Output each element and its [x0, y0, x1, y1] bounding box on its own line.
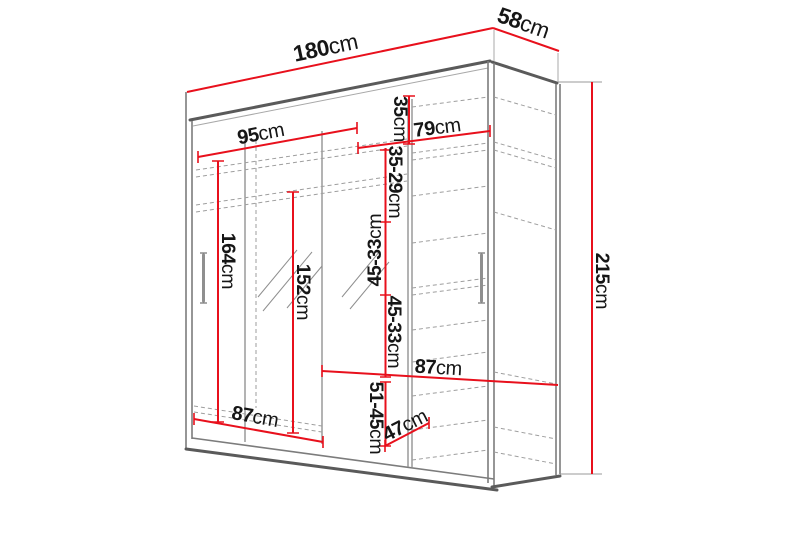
dim-total-height-unit: cm	[591, 284, 613, 309]
dim-total-height-value: 215	[591, 253, 613, 285]
dim-shelf-upper-unit: cm	[384, 193, 406, 218]
dim-left-door-height-unit: cm	[217, 264, 239, 289]
dim-left-door-height-label: 164cm	[217, 233, 239, 289]
dim-left-bottom-width-unit: cm	[251, 406, 280, 432]
dim-shelf-mid-a-label: 45-33cm	[364, 214, 386, 287]
front-top-edge	[190, 61, 490, 120]
dim-shelf-upper-value: 35-29	[384, 146, 406, 194]
shelf-line-right	[412, 97, 488, 460]
dim-mirror-height-unit: cm	[292, 295, 314, 320]
dim-mirror-height-value: 152	[292, 264, 314, 296]
dim-left-top-width-label: 95cm	[236, 119, 287, 149]
dim-right-top-width-unit: cm	[433, 114, 462, 139]
dim-bottom-shelf-value: 51-45	[365, 382, 387, 430]
dim-right-shelf-width-label: 87cm	[414, 356, 463, 381]
dim-shelf-mid-b-label: 45-33cm	[383, 296, 405, 369]
dim-shelf-mid-b-unit: cm	[383, 343, 405, 368]
dim-total-depth-label: 58cm	[494, 2, 553, 43]
door-handles	[200, 253, 485, 303]
dimension-labels: 180cm 58cm 215cm 95cm 79cm 35cm 35-29cm …	[217, 2, 613, 454]
dim-top-shelf-unit: cm	[389, 117, 411, 142]
wardrobe-dimension-diagram: 180cm 58cm 215cm 95cm 79cm 35cm 35-29cm …	[0, 0, 800, 533]
bottom-right-edge	[492, 476, 560, 487]
dim-bottom-shelf-label: 51-45cm	[365, 382, 387, 455]
dim-shelf-mid-b-value: 45-33	[383, 296, 405, 344]
right-top-edge	[492, 62, 557, 83]
dim-top-shelf-label: 35cm	[389, 96, 411, 142]
dim-right-shelf-width-unit: cm	[435, 357, 462, 381]
dim-total-width-label: 180cm	[291, 29, 360, 67]
dim-shelf-mid-a-unit: cm	[364, 214, 386, 239]
dim-shelf-upper-label: 35-29cm	[384, 146, 406, 219]
bottom-front-edge	[192, 438, 494, 479]
dim-mirror-height-label: 152cm	[292, 264, 314, 320]
dim-left-door-height-value: 164	[217, 233, 239, 265]
dim-shelf-mid-a-value: 45-33	[364, 238, 386, 286]
diagram-canvas: 180cm 58cm 215cm 95cm 79cm 35cm 35-29cm …	[0, 0, 800, 533]
dim-total-width-value: 180	[291, 35, 331, 67]
dim-total-height-label: 215cm	[591, 253, 613, 309]
dim-total-width-unit: cm	[326, 29, 360, 59]
dim-right-top-width-label: 79cm	[412, 114, 462, 142]
shelf-line-side	[494, 97, 556, 464]
dim-right-shelf-width-value: 87	[414, 356, 437, 379]
dim-top-shelf-value: 35	[389, 96, 411, 117]
